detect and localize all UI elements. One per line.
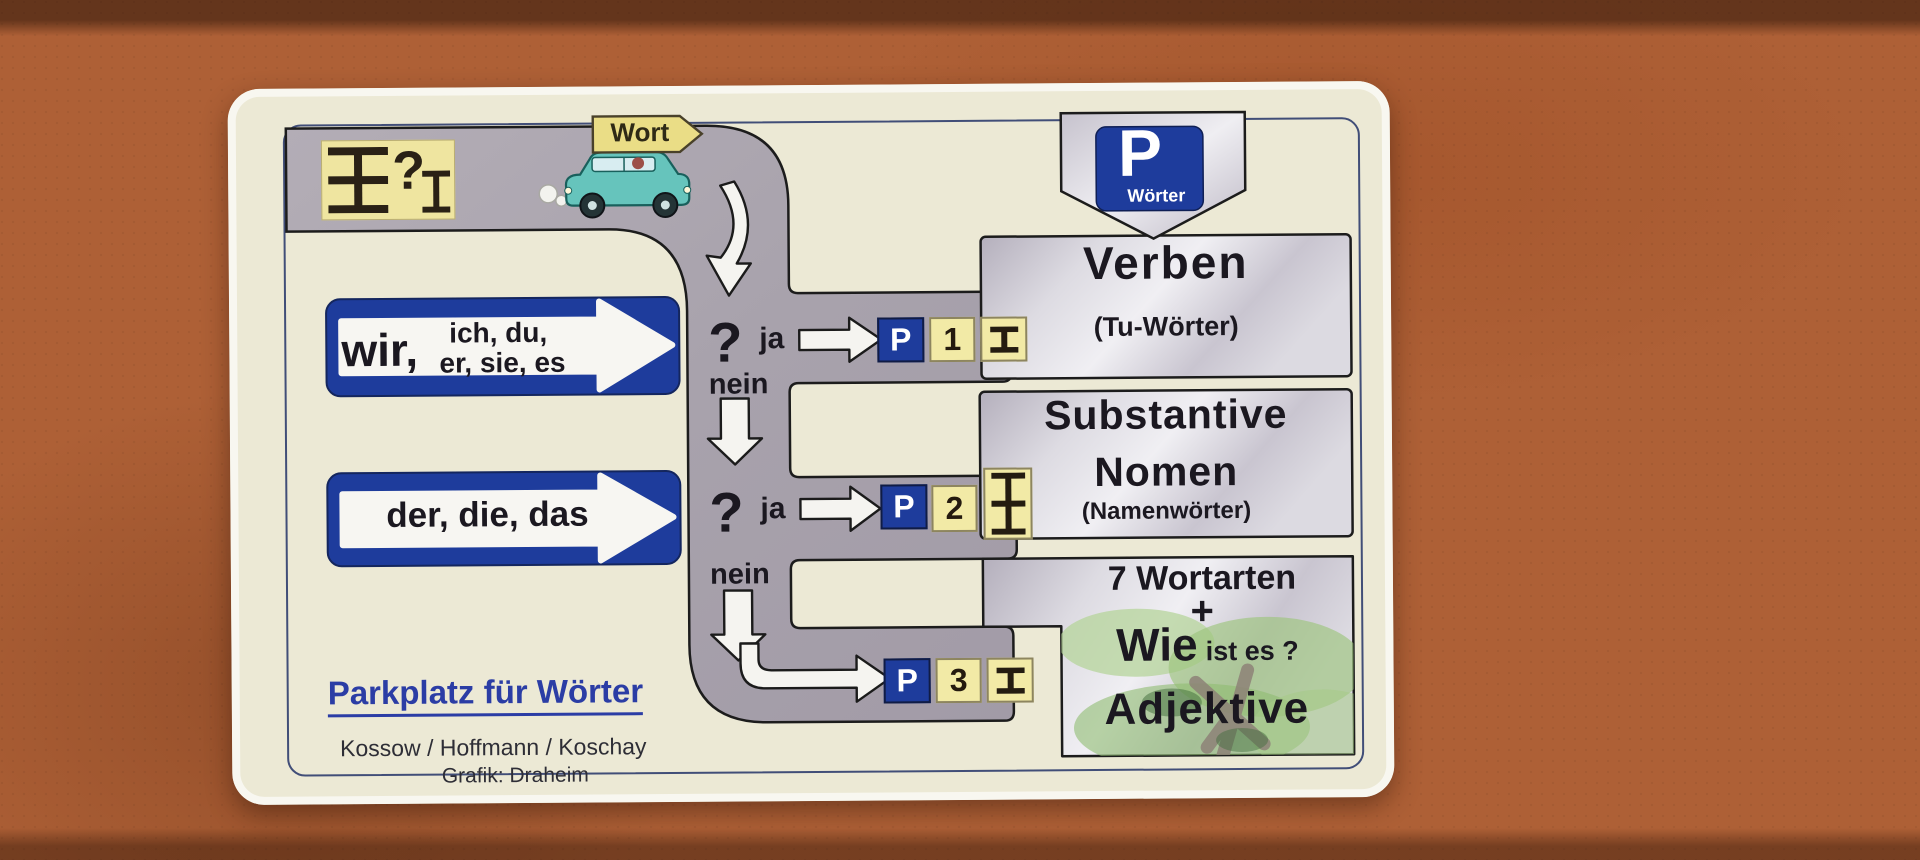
pronouns-line1-label: ich, du, <box>449 318 547 348</box>
question2-nein-label: nein <box>705 559 775 590</box>
adjectives-title: Adjektive <box>1052 685 1362 733</box>
authors-line: Kossow / Hoffmann / Koschay <box>340 734 647 760</box>
ibeam-3bar-icon <box>328 147 388 213</box>
p2-parking-square: P <box>880 484 927 529</box>
ibeam-2bar-icon <box>422 171 450 213</box>
car-sign-label: Wort <box>600 119 680 147</box>
graphic-credit: Grafik: Draheim <box>340 764 690 788</box>
word-symbols-box: ? <box>321 139 456 220</box>
articles-label: der, die, das <box>348 496 626 535</box>
question1-nein-label: nein <box>703 369 773 400</box>
pronouns-main-label: wir, <box>341 326 418 375</box>
p1-parking-square: P <box>877 317 924 362</box>
p1-number-square: 1 <box>929 317 975 362</box>
ibeam-2bar-icon <box>995 666 1025 694</box>
pronouns-line2-label: er, sie, es <box>439 348 565 378</box>
adjectives-wie: Wie <box>1116 618 1198 671</box>
parking-sign-letter: P <box>1100 118 1180 188</box>
adjectives-question-line: Wieist es ? <box>1059 619 1355 669</box>
question-mark-symbol: ? <box>392 143 425 200</box>
verbs-title: Verben <box>981 237 1351 288</box>
parking-sign-label: Wörter <box>1113 186 1199 205</box>
cork-board-background: { "colors": { "background_cork": "#ae603… <box>0 0 1920 860</box>
question2-ja-label: ja <box>760 493 785 525</box>
p2-number-square: 2 <box>931 485 977 532</box>
question2-mark: ? <box>708 483 744 542</box>
question1-mark: ? <box>707 313 743 372</box>
p3-adjective-symbol-square <box>987 657 1034 702</box>
grammar-flowchart-card: ? Wort P Wörter wir, ich, du, er, sie, e… <box>228 81 1395 805</box>
card-title: Parkplatz für Wörter <box>328 674 644 717</box>
nouns-subtitle: (Namenwörter) <box>980 497 1352 525</box>
p3-number-square: 3 <box>936 658 982 703</box>
nouns-title2: Nomen <box>980 449 1352 495</box>
p3-parking-square: P <box>884 658 931 703</box>
adjectives-rest: ist es ? <box>1206 636 1299 667</box>
card-title-text: Parkplatz für Wörter <box>328 674 644 717</box>
nouns-title1: Substantive <box>980 392 1352 438</box>
verbs-subtitle: (Tu-Wörter) <box>981 311 1351 342</box>
question1-ja-label: ja <box>759 323 784 355</box>
